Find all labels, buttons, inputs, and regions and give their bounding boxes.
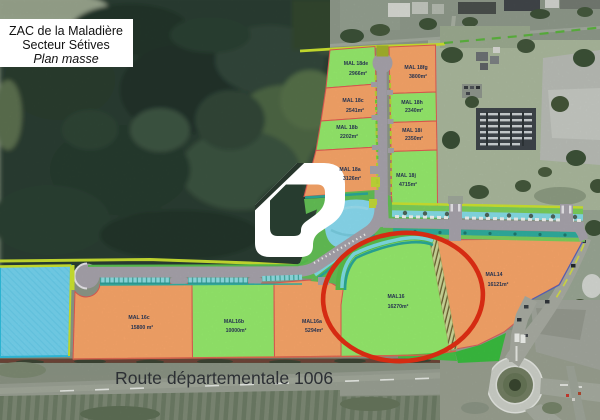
svg-text:2350m²: 2350m²	[405, 136, 423, 142]
svg-text:Plan masse: Plan masse	[33, 52, 98, 66]
svg-text:2966m²: 2966m²	[349, 71, 367, 77]
svg-text:MAL16b: MAL16b	[224, 319, 244, 325]
svg-text:16270m²: 16270m²	[388, 304, 409, 310]
svg-text:ZAC de la Maladière: ZAC de la Maladière	[9, 24, 123, 38]
svg-text:5294m²: 5294m²	[305, 328, 323, 334]
svg-text:3800m²: 3800m²	[409, 74, 427, 80]
svg-text:Route départementale 1006: Route départementale 1006	[115, 368, 333, 388]
svg-text:4715m²: 4715m²	[399, 182, 417, 188]
svg-text:MAL 18de: MAL 18de	[344, 61, 369, 67]
svg-text:MAL 18i: MAL 18i	[402, 128, 422, 134]
svg-text:MAL 18a: MAL 18a	[339, 167, 360, 173]
svg-text:MAL 18j: MAL 18j	[396, 173, 416, 179]
svg-text:MAL 16c: MAL 16c	[128, 315, 149, 321]
svg-text:MAL 18h: MAL 18h	[401, 100, 423, 106]
svg-text:15800 m²: 15800 m²	[131, 325, 153, 331]
svg-text:2541m²: 2541m²	[346, 108, 364, 114]
svg-text:MAL 18b: MAL 18b	[336, 125, 358, 131]
svg-text:2202m²: 2202m²	[340, 134, 358, 140]
svg-text:16121m²: 16121m²	[488, 282, 509, 288]
svg-text:3126m²: 3126m²	[343, 176, 361, 182]
svg-text:2340m²: 2340m²	[405, 108, 423, 114]
svg-text:Secteur Sétives: Secteur Sétives	[22, 38, 110, 52]
svg-text:MAL16: MAL16	[387, 294, 404, 300]
svg-text:MAL 18c: MAL 18c	[342, 98, 363, 104]
svg-text:MAL14: MAL14	[485, 272, 502, 278]
svg-text:10000m²: 10000m²	[226, 328, 247, 334]
svg-text:MAL16a: MAL16a	[302, 319, 322, 325]
svg-text:MAL 18fg: MAL 18fg	[404, 65, 427, 71]
